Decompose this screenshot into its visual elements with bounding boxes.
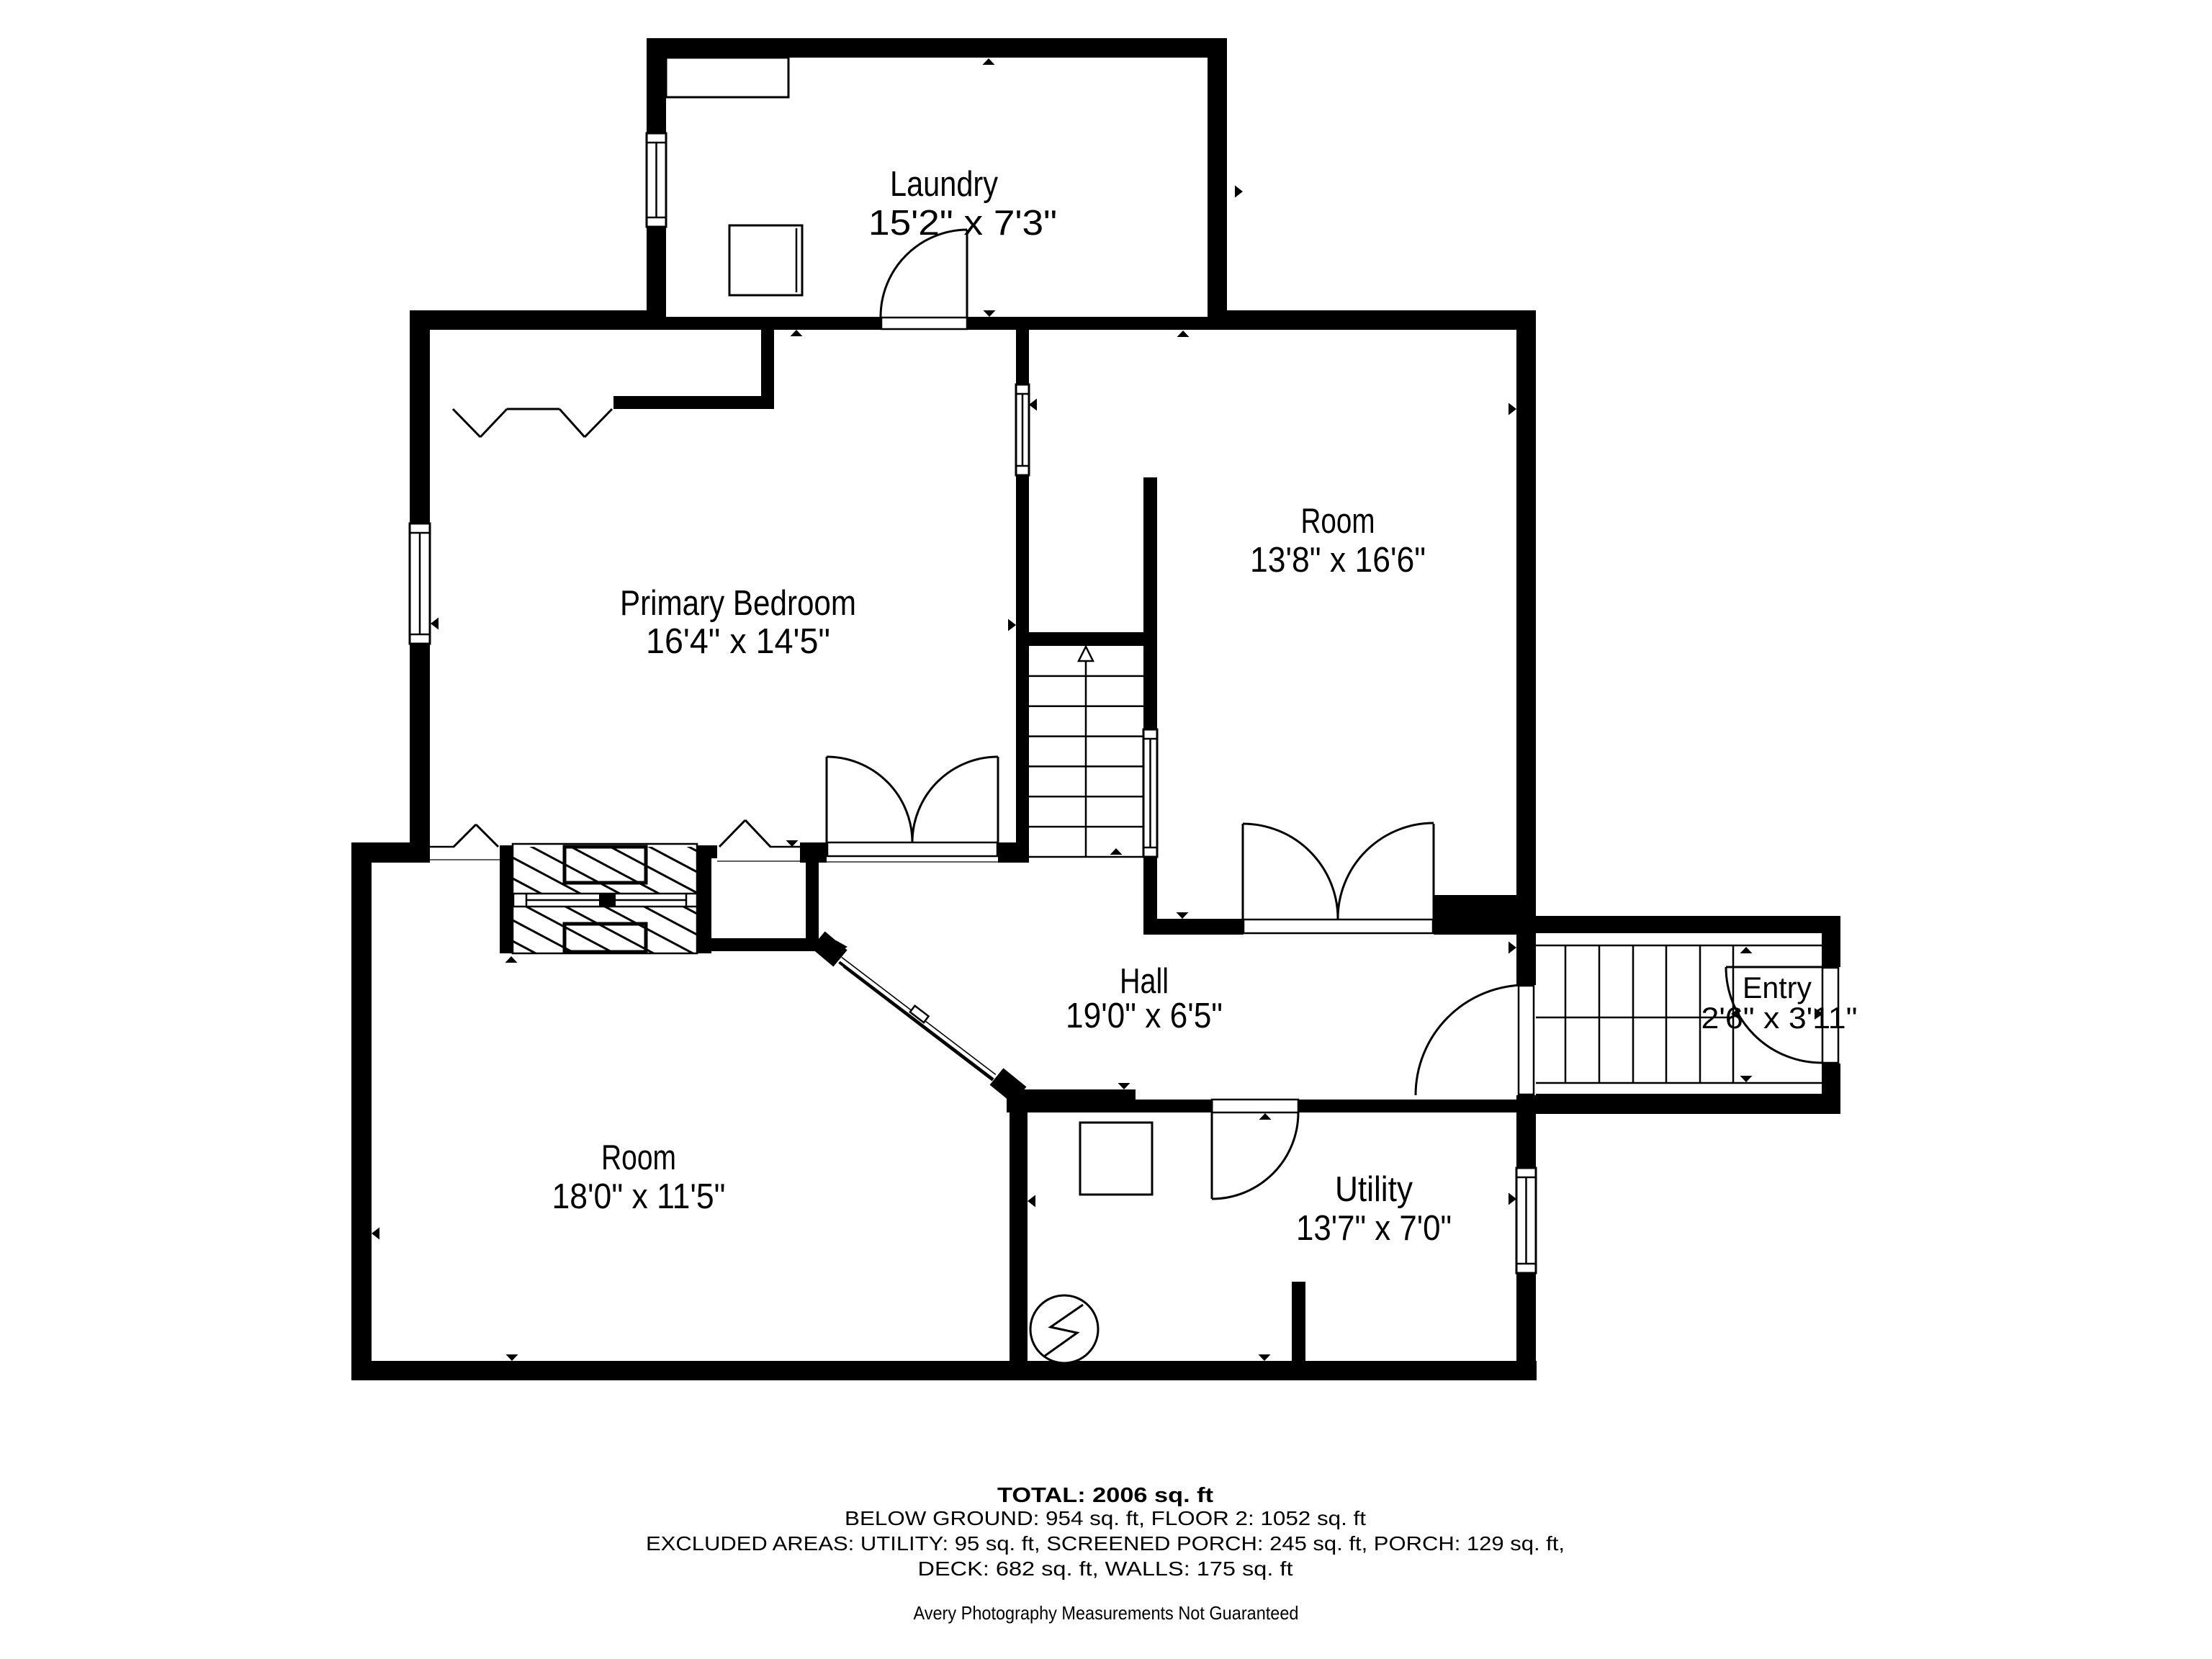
svg-text:Room: Room (601, 1138, 676, 1177)
svg-text:DECK: 682 sq. ft, WALLS: 175 s: DECK: 682 sq. ft, WALLS: 175 sq. ft (918, 1557, 1293, 1580)
svg-text:TOTAL: 2006 sq. ft: TOTAL: 2006 sq. ft (997, 1484, 1213, 1507)
svg-text:15'2" x 7'3": 15'2" x 7'3" (868, 204, 1057, 243)
svg-text:BELOW GROUND: 954 sq. ft, FLOO: BELOW GROUND: 954 sq. ft, FLOOR 2: 1052 … (845, 1507, 1366, 1529)
svg-text:Avery Photography Measurements: Avery Photography Measurements Not Guara… (914, 1602, 1299, 1624)
svg-text:16'4" x 14'5": 16'4" x 14'5" (646, 622, 830, 661)
svg-text:Room: Room (1301, 502, 1375, 541)
svg-text:Utility: Utility (1335, 1170, 1413, 1209)
svg-text:13'8" x 16'6": 13'8" x 16'6" (1250, 541, 1426, 580)
svg-text:2'6" x 3'11": 2'6" x 3'11" (1701, 1001, 1858, 1035)
svg-text:EXCLUDED AREAS: UTILITY: 95 sq: EXCLUDED AREAS: UTILITY: 95 sq. ft, SCRE… (646, 1532, 1565, 1555)
svg-text:13'7" x 7'0": 13'7" x 7'0" (1296, 1209, 1452, 1248)
svg-text:Entry: Entry (1743, 971, 1812, 1004)
svg-text:19'0" x 6'5": 19'0" x 6'5" (1066, 997, 1223, 1035)
svg-text:Laundry: Laundry (890, 165, 998, 204)
svg-text:Primary Bedroom: Primary Bedroom (620, 584, 856, 623)
svg-text:18'0" x 11'5": 18'0" x 11'5" (552, 1177, 726, 1216)
svg-text:Hall: Hall (1120, 962, 1169, 1001)
